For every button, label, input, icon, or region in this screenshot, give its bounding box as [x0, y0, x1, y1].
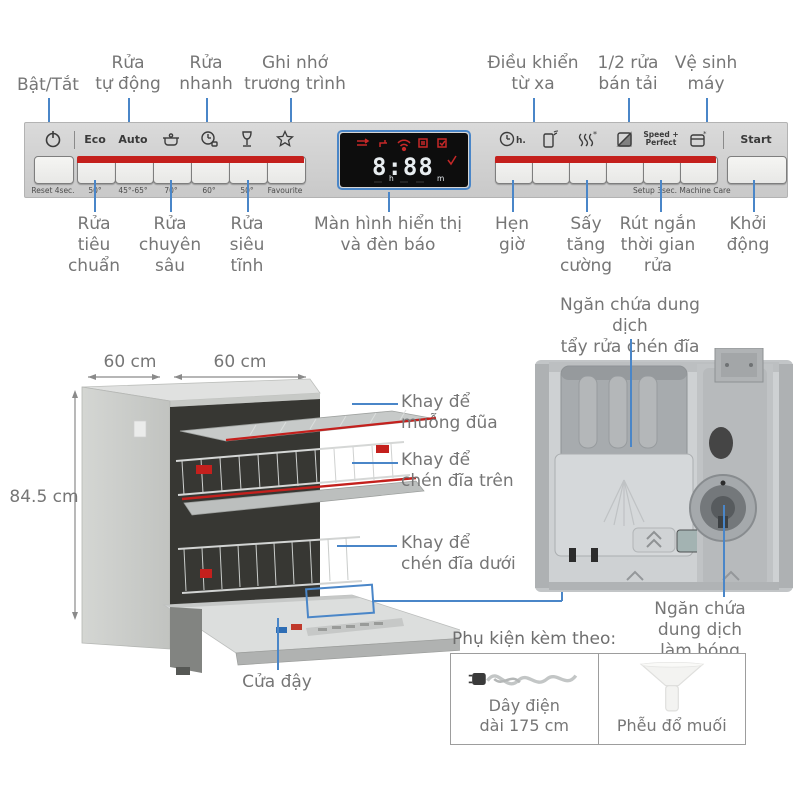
- label-upper-rack: Khay để chén đĩa trên: [401, 450, 514, 492]
- detergent-compartment: [561, 366, 687, 462]
- half-load-icon: [614, 127, 634, 151]
- dispenser-highlight-box: [305, 584, 375, 619]
- glass-icon: [237, 127, 257, 151]
- label-lower-rack: Khay để chén đĩa dưới: [401, 533, 516, 575]
- dim-depth: 60 cm: [104, 352, 157, 373]
- remote-phone-icon: [540, 127, 560, 151]
- start-label: Start: [740, 127, 771, 151]
- fill-opening: [709, 427, 733, 459]
- label-cutlery-tray: Khay để muỗng đũa: [401, 392, 498, 434]
- rinse-aid-compartment: [690, 348, 773, 590]
- callout-line: [247, 180, 249, 212]
- label-machine-care: Vệ sinh máy: [675, 53, 738, 95]
- caption-60: 60°: [202, 186, 215, 195]
- label-favourite: Ghi nhớ trương trình: [244, 53, 346, 95]
- intensive-pot-icon: [161, 127, 181, 151]
- dim-width: 60 cm: [214, 352, 267, 373]
- product-annotation-page: Bật/Tắt Rửa tự động Rửa nhanh Ghi nhớ tr…: [0, 0, 800, 800]
- brand-logo: [291, 624, 302, 630]
- auto-label: Auto: [118, 127, 147, 151]
- accessory-caption: Phễu đổ muối: [617, 716, 727, 736]
- eco-label: Eco: [84, 127, 106, 151]
- accessories-title: Phụ kiện kèm theo:: [452, 629, 616, 650]
- energy-sticker: [134, 421, 146, 437]
- divider: [74, 131, 75, 149]
- svg-text:h.: h.: [516, 136, 526, 146]
- svg-text:*: *: [593, 130, 597, 139]
- label-quick-wash: Rửa nhanh: [179, 53, 233, 95]
- speed-perfect-label: Speed + Perfect: [643, 127, 678, 151]
- label-standard-wash: Rửa tiêu chuẩn: [68, 214, 120, 277]
- callout-line: [753, 180, 755, 212]
- callout-line: [352, 403, 398, 405]
- display-screen: 8:88 h m: [340, 133, 468, 187]
- red-item: [200, 569, 212, 578]
- callout-line: [586, 180, 588, 212]
- caption-machine-care: Machine Care: [679, 186, 730, 195]
- accessory-power-cord: Dây điện dài 175 cm: [451, 654, 598, 744]
- accessory-caption: Dây điện dài 175 cm: [480, 696, 570, 736]
- label-deep-wash: Rửa chuyên sâu: [139, 214, 201, 277]
- label-extra-dry: Sấy tăng cường: [560, 214, 612, 277]
- callout-line: [660, 180, 662, 212]
- program-red-strip: [495, 156, 716, 163]
- dispenser-photo: [535, 348, 793, 602]
- label-half-load: 1/2 rửa bán tải: [598, 53, 659, 95]
- callout-line: [277, 618, 279, 670]
- svg-text:*: *: [703, 130, 707, 138]
- machine-care-icon: *: [688, 127, 708, 151]
- timer-hour-icon: h.: [499, 127, 527, 151]
- power-icon: [43, 127, 63, 151]
- callout-line: [94, 180, 96, 212]
- label-timer: Hẹn giờ: [495, 214, 529, 256]
- control-panel: Eco Auto: [24, 122, 788, 198]
- divider: [723, 131, 724, 149]
- start-button[interactable]: [727, 156, 787, 184]
- display-minute-unit: m: [437, 174, 444, 183]
- label-display: Màn hình hiển thị và đèn báo: [314, 214, 462, 256]
- dim-height: 84.5 cm: [9, 487, 78, 508]
- accessory-salt-funnel: Phễu đổ muối: [598, 654, 746, 744]
- caption-reset: Reset 4sec.: [31, 186, 74, 195]
- plinth: [170, 607, 202, 675]
- extra-dry-steam-icon: *: [576, 127, 598, 151]
- callout-line: [337, 545, 397, 547]
- callout-line: [512, 180, 514, 212]
- display-time: 8:88: [372, 153, 434, 181]
- power-cord-icon: [464, 662, 584, 696]
- caption-favourite: Favourite: [268, 186, 303, 195]
- label-power: Bật/Tắt: [17, 75, 79, 96]
- salt-funnel-icon: [625, 662, 719, 714]
- label-start: Khởi động: [727, 214, 770, 256]
- callout-line: [170, 180, 172, 212]
- accessories-box: Dây điện dài 175 cm Phễu đổ muối: [450, 653, 746, 745]
- connector-line: [372, 600, 562, 602]
- power-button[interactable]: [34, 156, 74, 184]
- dishwasher-illustration: [50, 345, 460, 680]
- red-handle: [376, 445, 389, 453]
- program-red-strip: [77, 156, 304, 163]
- favourite-star-icon: [275, 127, 295, 151]
- red-handle: [196, 465, 212, 474]
- display-hour-unit: h: [389, 174, 394, 183]
- label-door: Cửa đậy: [242, 672, 312, 693]
- label-speed-perfect: Rút ngắn thời gian rửa: [620, 214, 697, 277]
- callout-line: [630, 339, 632, 447]
- callout-line: [352, 462, 398, 464]
- dispenser-lid: [555, 454, 703, 562]
- label-silent-wash: Rửa siêu tĩnh: [230, 214, 265, 277]
- display: 8:88 h m: [337, 130, 471, 190]
- label-auto-wash: Rửa tự động: [95, 53, 161, 95]
- caption-setup: Setup 3sec.: [633, 186, 677, 195]
- caption-auto-temp: 45°-65°: [118, 186, 147, 195]
- quick-wash-clock-icon: [199, 127, 219, 151]
- callout-line: [723, 505, 725, 597]
- label-remote-control: Điều khiển từ xa: [487, 53, 578, 95]
- callout-line: [388, 192, 390, 212]
